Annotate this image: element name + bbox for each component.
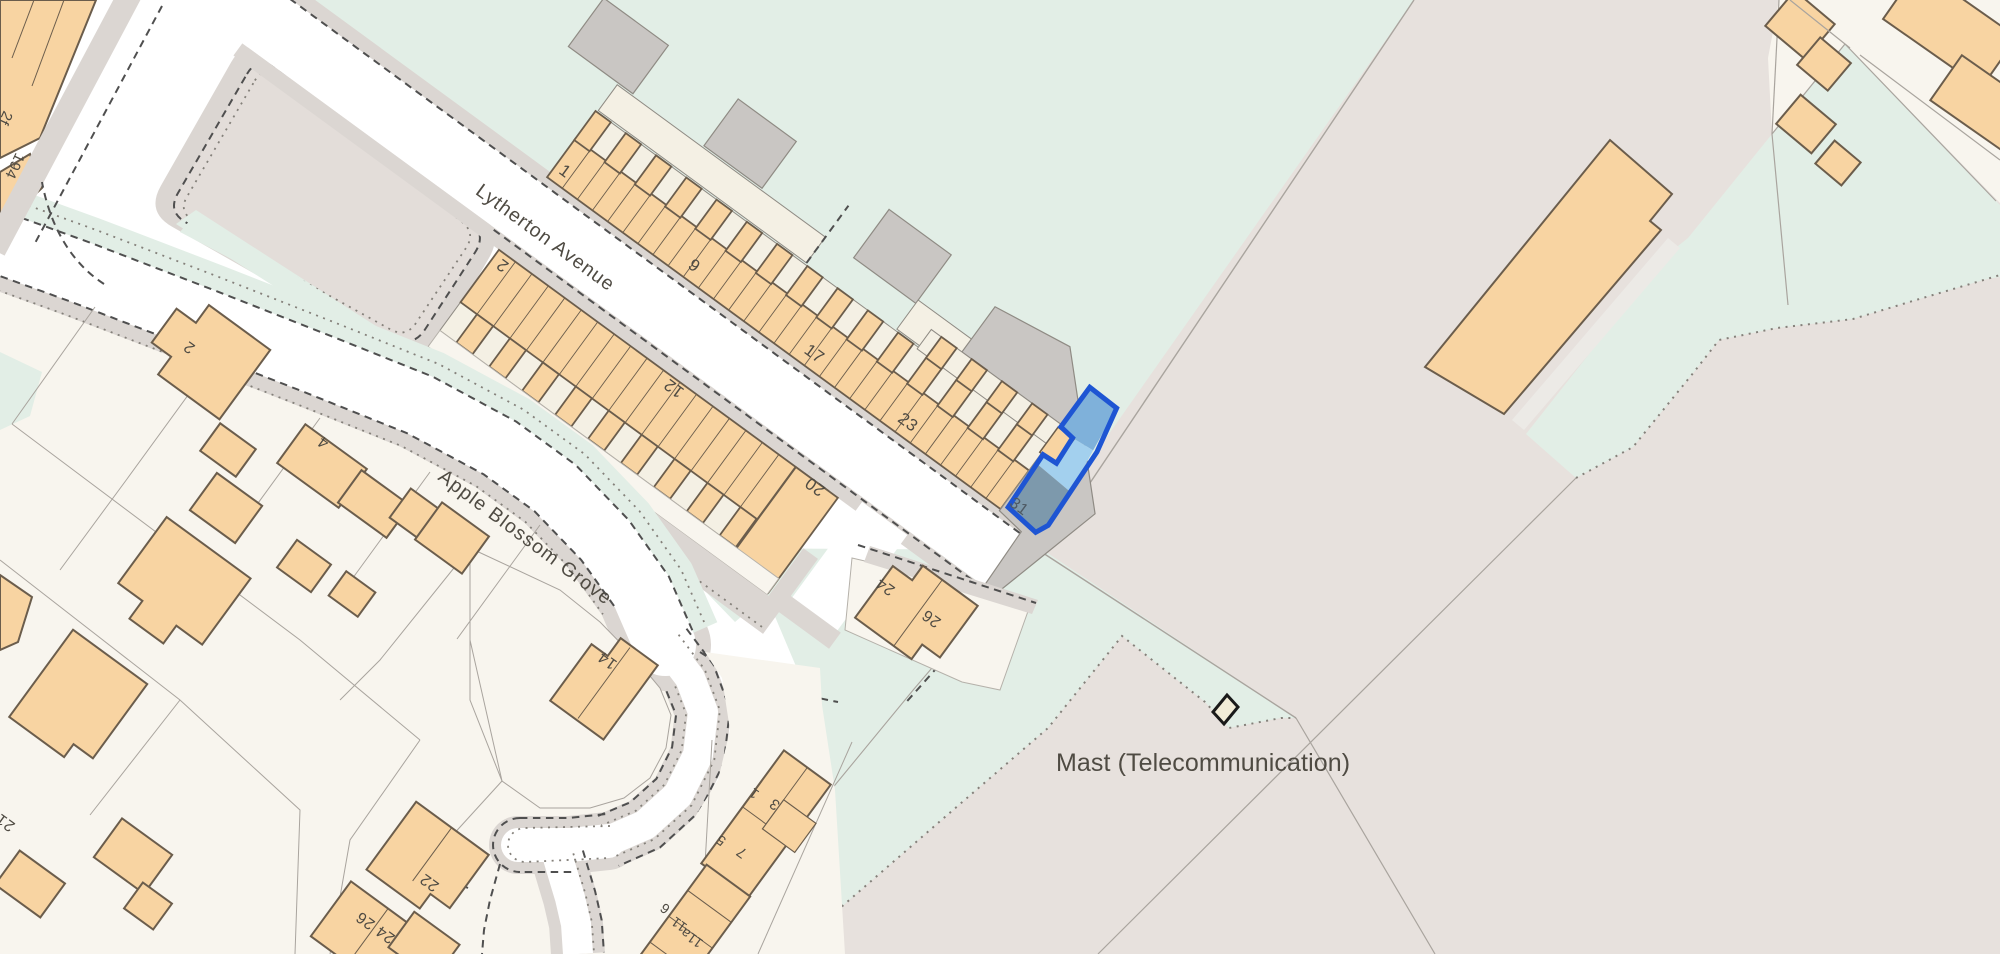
svg-text:Mast (Telecommunication): Mast (Telecommunication) xyxy=(1056,749,1350,777)
